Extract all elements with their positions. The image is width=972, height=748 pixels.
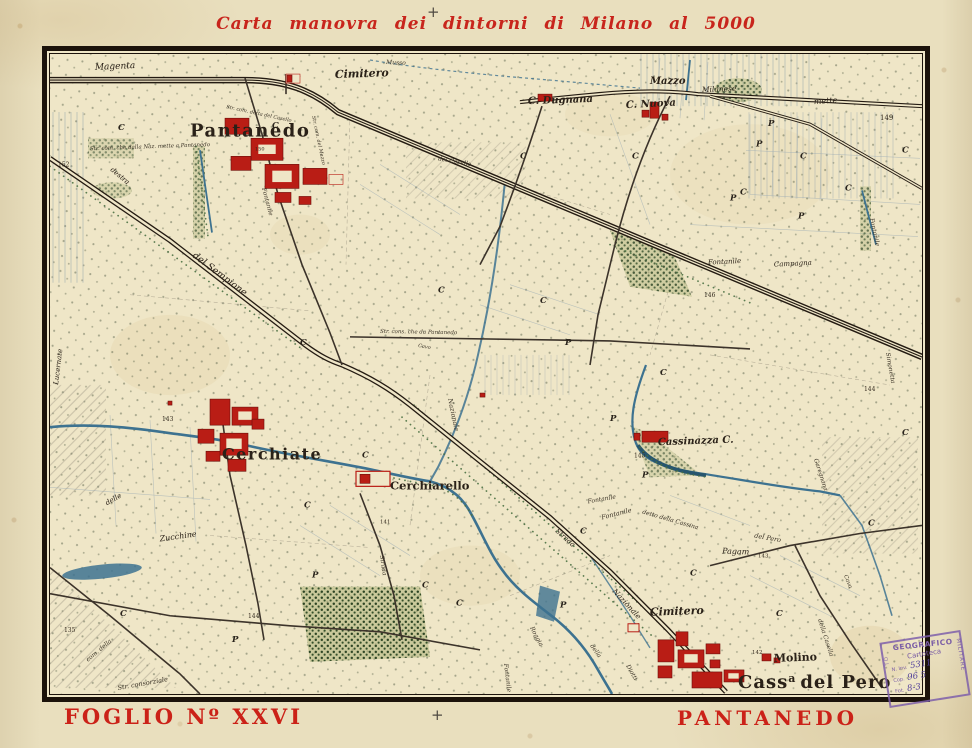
map-label: Fontanile bbox=[707, 256, 742, 267]
map-label: Cimitero bbox=[335, 66, 389, 81]
map-label: 150 bbox=[255, 146, 265, 152]
field-letter: P bbox=[311, 571, 319, 581]
map-label: Mazzo bbox=[649, 76, 686, 87]
map-label: 143 bbox=[162, 416, 174, 423]
map-label: 145 bbox=[634, 452, 646, 459]
field-letter: C bbox=[868, 518, 875, 528]
field-letter: P bbox=[559, 601, 567, 611]
stamp-fot-value: 8-3 bbox=[906, 682, 921, 694]
registration-cross-bottom: + bbox=[431, 706, 444, 724]
map-label: 152 bbox=[58, 161, 70, 168]
building-cimitero-north bbox=[286, 74, 300, 83]
field-letter: C bbox=[690, 569, 697, 579]
map-svg: MagentaMussoCimiteroPantanedo150Str. com… bbox=[50, 54, 922, 694]
field-letter: P bbox=[641, 470, 649, 480]
stamp-inv-label: N. Inv. bbox=[891, 665, 907, 673]
field-letter: P bbox=[797, 212, 805, 222]
map-label: Milanese bbox=[701, 84, 737, 94]
map-label: 141 bbox=[380, 519, 390, 525]
map-label: 146 bbox=[704, 292, 716, 299]
map-label: 143 bbox=[758, 554, 769, 560]
field-letter: P bbox=[729, 193, 737, 203]
field-letter: C bbox=[580, 526, 587, 536]
field-letter: C bbox=[845, 183, 852, 193]
field-letter: C bbox=[422, 581, 429, 591]
field-letter: C bbox=[456, 599, 463, 609]
field-letter: C bbox=[304, 500, 311, 510]
building-cimitero-south bbox=[628, 624, 639, 632]
field-letter: C bbox=[800, 151, 807, 161]
field-letter: C bbox=[118, 123, 125, 133]
map-label: 142 bbox=[752, 650, 762, 656]
field-letter: C bbox=[740, 187, 747, 197]
map-label: mette bbox=[814, 96, 838, 107]
stamp-fot-label: Fot. bbox=[895, 688, 905, 695]
field-letter: C bbox=[902, 428, 909, 438]
field-letter: C bbox=[776, 609, 783, 619]
map-label: 135 bbox=[64, 627, 76, 634]
field-letter: C bbox=[520, 151, 527, 161]
map-label: C. Dugnana bbox=[528, 94, 593, 107]
field-letter: P bbox=[755, 139, 763, 149]
map-frame: MagentaMussoCimiteroPantanedo150Str. com… bbox=[42, 46, 930, 702]
map-label: Pantanedo bbox=[190, 120, 310, 141]
archive-stamp: GEOGRAFICO Cartoteca N. Inv. 5311 Cop. 9… bbox=[879, 630, 970, 708]
map-sheet-page: Carta manovra dei dintorni di Milano al … bbox=[0, 0, 972, 748]
map-canvas[interactable]: MagentaMussoCimiteroPantanedo150Str. com… bbox=[49, 53, 923, 695]
stamp-cop-label: Cop. bbox=[893, 676, 905, 684]
page-title: Carta manovra dei dintorni di Milano al … bbox=[0, 14, 972, 34]
field-letter: C bbox=[120, 609, 127, 619]
field-letter: C bbox=[272, 121, 279, 131]
map-label: 144 bbox=[248, 613, 260, 620]
field-letter: C bbox=[300, 338, 307, 348]
map-label: Molino bbox=[774, 650, 818, 665]
building-cerchiarello bbox=[356, 471, 390, 486]
field-letter: P bbox=[231, 635, 239, 645]
field-letter: C bbox=[632, 151, 639, 161]
field-letter: C bbox=[362, 450, 369, 460]
label-cassina-del-pero: Cassadel Pero bbox=[738, 672, 891, 693]
map-label: 149 bbox=[880, 113, 893, 122]
map-label: Pagam bbox=[721, 547, 750, 557]
field-letter: P bbox=[609, 414, 617, 424]
sheet-place-label: PANTANEDO bbox=[677, 706, 858, 730]
field-letter: P bbox=[767, 119, 775, 129]
registration-cross-top: + bbox=[427, 3, 440, 21]
field-letter: C bbox=[902, 145, 909, 155]
map-label: Cerchiarello bbox=[390, 478, 470, 492]
field-letter: C bbox=[438, 286, 445, 296]
sheet-number-label: FOGLIO Nº XXVI bbox=[64, 704, 303, 729]
stamp-left-fragment: TO bbox=[884, 655, 891, 666]
map-label: Cimitero bbox=[650, 604, 704, 619]
field-letter: C bbox=[540, 296, 547, 306]
map-label: 144 bbox=[864, 386, 876, 393]
map-label: Cerchiate bbox=[222, 444, 322, 463]
field-letter: C bbox=[660, 368, 667, 378]
field-letter: P bbox=[564, 338, 572, 348]
